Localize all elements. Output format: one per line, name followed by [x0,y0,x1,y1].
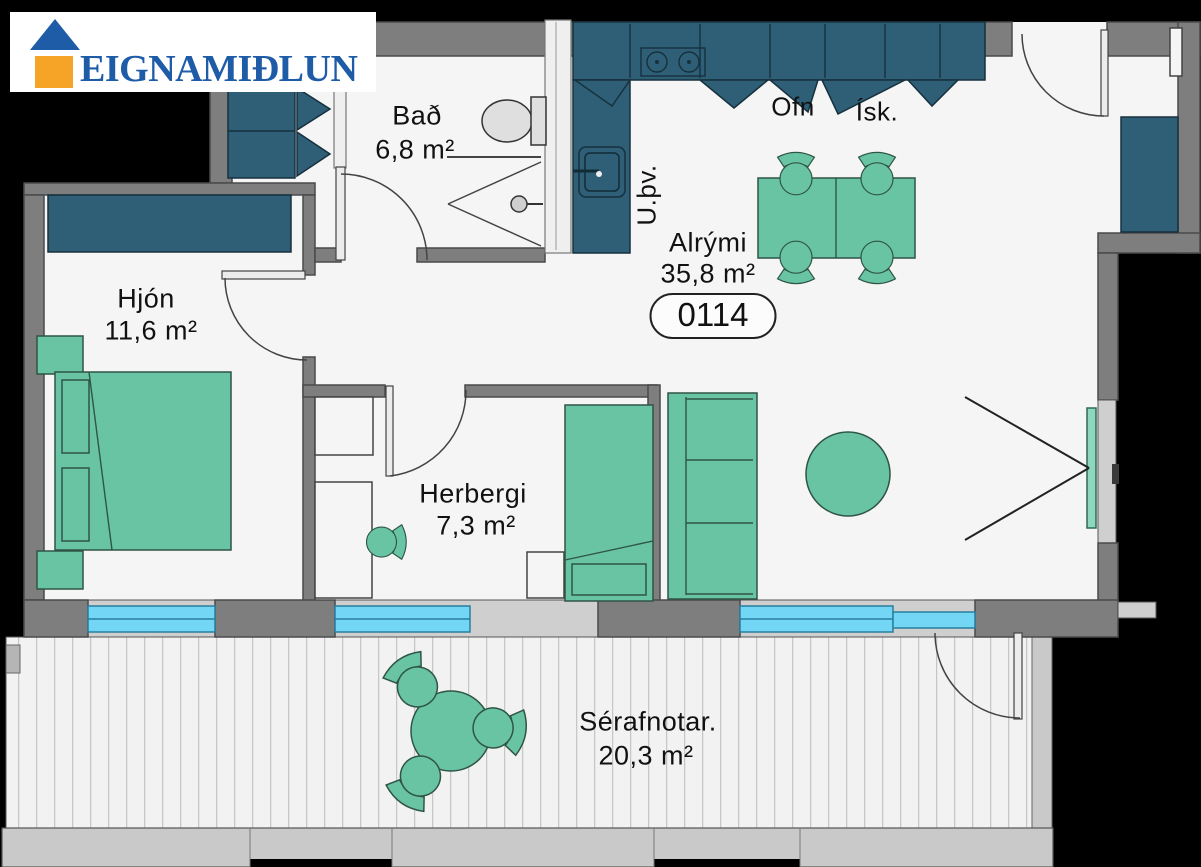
nightstand [37,336,83,374]
wall-bedroom-right-a [303,195,315,275]
sofa [668,393,757,599]
rail-gap [250,859,392,867]
wall-bedroom-top [24,183,315,195]
sill-bottom-right [1118,602,1156,618]
entry-door-leaf [1101,30,1108,116]
unit-number-badge: 0114 [650,293,777,339]
desk-chair [367,525,407,560]
room-area-label: 7,3 m² [436,511,516,542]
balcony-name-label: Sérafnotar. [579,707,717,738]
pillow [62,468,89,541]
bathroom-right-partition [545,20,571,253]
agency-name: EIGNAMIÐLUN [80,50,357,88]
washing-machine-label: U.þv. [632,164,663,225]
balcony-front-rail [2,828,1053,867]
agency-logo: EIGNAMIÐLUN [10,12,376,92]
room-door-leaf [386,386,393,476]
logo-house-body-icon [35,56,73,88]
wall-room-top-a [303,385,385,397]
room-name-label: Herbergi [419,479,527,510]
washer-knob [596,171,602,177]
balcony-right-rail [1032,637,1052,828]
logo-house-roof-icon [30,19,80,50]
pillow [62,380,89,453]
room-nightstand [527,552,564,598]
oven-label: Ofn [771,92,814,123]
wall-bottom-4 [975,600,1118,637]
bedroom-door-leaf [222,271,305,279]
kitchen-counter-top [573,22,985,80]
fridge-label: Ísk. [856,97,898,128]
wall-bath-bottom [417,248,545,262]
bathroom-name-label: Bað [392,101,442,132]
entry-closet [1121,117,1178,232]
wall-bottom-1 [24,600,88,637]
window-handle-mark [1112,464,1119,484]
single-bed-pillow [572,564,646,595]
bedroom-wardrobe [48,195,291,252]
floor-entry-threshold [1012,22,1107,56]
dining-chair [859,241,896,283]
shower-head [511,196,527,212]
toilet-bowl [482,100,532,142]
living-area-label: 35,8 m² [660,259,755,290]
wall-niche [1170,28,1182,76]
wall-bottom-2 [215,600,335,637]
bedroom-name-label: Hjón [117,284,175,315]
bedroom-area-label: 11,6 m² [104,316,197,347]
floorplan-page: Bað 6,8 m² Hjón 11,6 m² Alrými 35,8 m² H… [0,0,1201,867]
round-table [806,432,890,516]
wall-bottom-3 [598,600,740,637]
wall-room-top-b [465,385,657,397]
dining-chair [778,241,815,283]
rail-gap [654,859,800,867]
bathroom-area-label: 6,8 m² [375,135,455,166]
bathroom-door-leaf [336,167,345,260]
balcony-door-glass [893,612,975,628]
balcony-zone [2,637,1053,867]
dining-chair [859,152,896,194]
wall-right-a [1098,253,1118,400]
wall-recess [1098,233,1200,253]
balcony-door-leaf [1014,633,1022,719]
living-name-label: Alrými [669,228,747,259]
balcony-post [6,645,20,673]
wall-left [24,195,44,600]
dining-chair [778,152,815,194]
balcony-area-label: 20,3 m² [598,741,693,772]
sink-drain [687,60,691,64]
toilet-tank [531,97,546,145]
nightstand [37,551,83,589]
balcony-deck [6,637,1052,828]
sink-drain [655,60,659,64]
room-closet [315,397,373,455]
desk [315,482,372,598]
